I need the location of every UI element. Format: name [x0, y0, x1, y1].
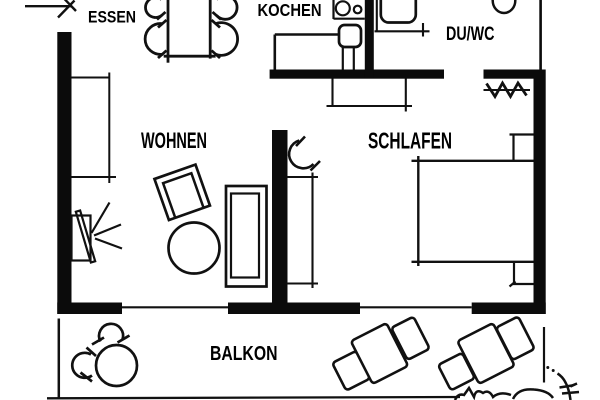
- svg-text:ESSEN: ESSEN: [88, 9, 136, 27]
- svg-text:DU/WC: DU/WC: [446, 24, 495, 45]
- svg-text:KOCHEN: KOCHEN: [258, 0, 322, 20]
- svg-text:BALKON: BALKON: [210, 342, 278, 365]
- svg-text:SCHLAFEN: SCHLAFEN: [368, 128, 452, 154]
- svg-text:WOHNEN: WOHNEN: [141, 128, 207, 153]
